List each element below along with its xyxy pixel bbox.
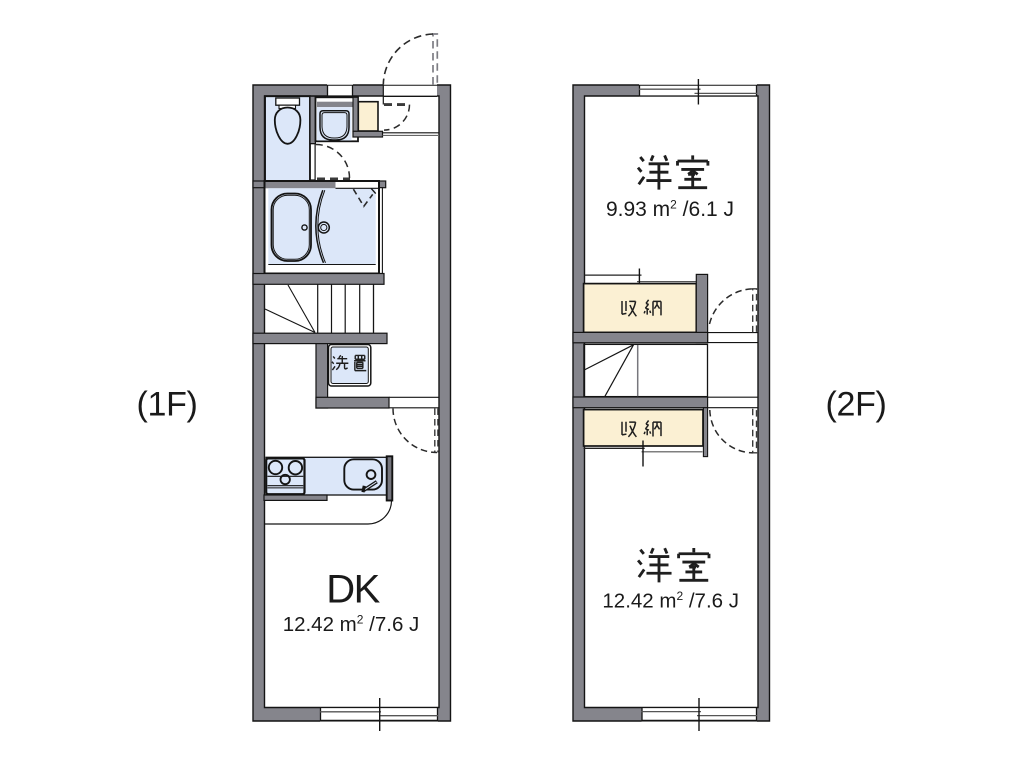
svg-text:12.42 m2 /7.6 J: 12.42 m2 /7.6 J xyxy=(283,613,420,637)
svg-text:(1F): (1F) xyxy=(136,386,197,424)
svg-text:9.93 m2 /6.1 J: 9.93 m2 /6.1 J xyxy=(606,198,734,222)
svg-text:(2F): (2F) xyxy=(825,386,886,424)
svg-text:12.42 m2 /7.6 J: 12.42 m2 /7.6 J xyxy=(602,589,739,613)
svg-text:DK: DK xyxy=(326,568,380,612)
